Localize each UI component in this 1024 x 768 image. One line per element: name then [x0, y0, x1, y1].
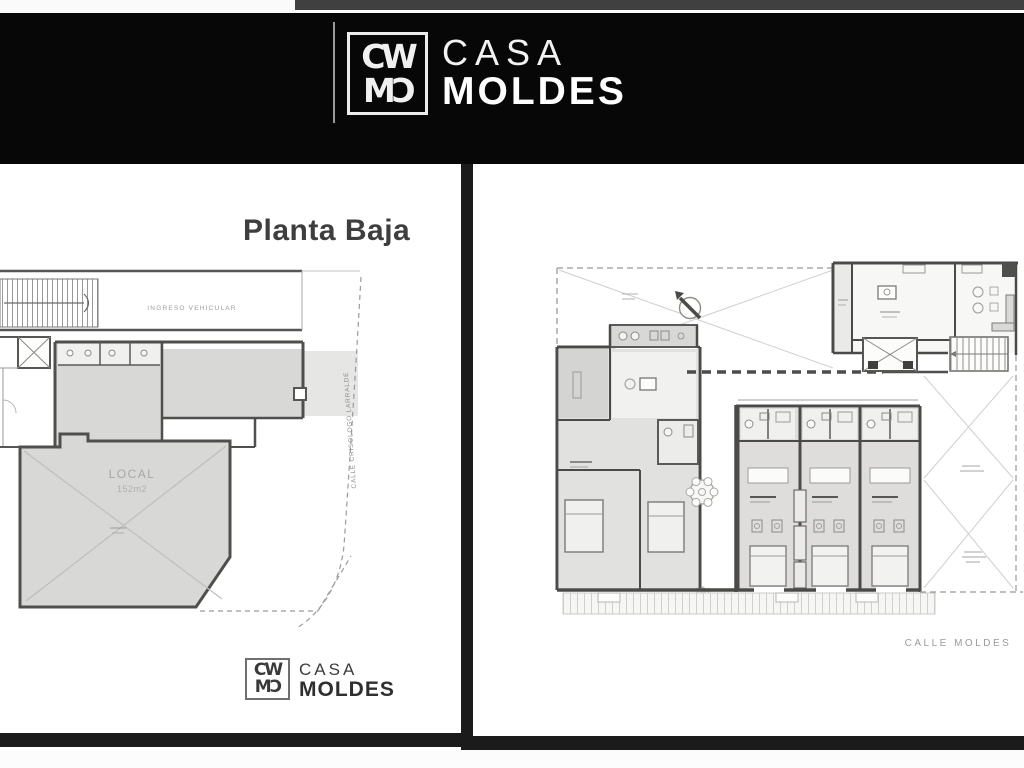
left-panel-border — [0, 733, 461, 747]
unit-left — [557, 325, 700, 590]
planta-baja-floorplan: INGRESO VEHICULAR — [0, 164, 461, 733]
stairs — [950, 337, 1008, 371]
toilet-fixture — [141, 350, 147, 356]
street-label-moldes: CALLE MOLDES — [905, 638, 1012, 649]
local-room: LOCAL 152m2 — [20, 434, 230, 607]
bed — [565, 500, 603, 552]
door-swing — [3, 400, 16, 413]
bottom-strip — [0, 750, 1024, 768]
sidewalk — [563, 593, 935, 614]
header-bar: CW MƆ CASA MOLDES — [0, 13, 1024, 164]
bathroom — [658, 420, 698, 464]
brand-name: CASA MOLDES — [442, 34, 627, 111]
vehicle-ramp: INGRESO VEHICULAR — [0, 271, 360, 330]
footer-brand-line2: MOLDES — [299, 679, 395, 700]
ramp-label: INGRESO VEHICULAR — [147, 305, 236, 312]
duct-box — [294, 388, 306, 400]
typical-floorplan: CALLE MOLDES — [473, 164, 1024, 736]
monogram-top: CW — [350, 40, 425, 74]
service-shaft — [863, 338, 917, 371]
side-patio — [920, 355, 1023, 592]
table — [878, 286, 896, 299]
ground-floor-rooms — [0, 337, 358, 447]
bed — [648, 502, 684, 552]
toilet-fixture — [67, 350, 73, 356]
footer-brand-name: CASA MOLDES — [299, 660, 395, 700]
flyer-page: CW MƆ CASA MOLDES Planta Baja ING — [0, 0, 1024, 768]
table — [640, 378, 656, 390]
local-label: LOCAL — [109, 467, 156, 481]
toilet-fixture — [85, 350, 91, 356]
local-area-label: 152m2 — [117, 484, 147, 494]
brand-name-line2: MOLDES — [442, 72, 627, 111]
top-strip-shade — [295, 0, 1024, 10]
right-panel-border — [473, 736, 1024, 750]
monogram-bottom: MƆ — [247, 679, 288, 696]
panel-divider — [461, 164, 473, 752]
footer-monogram: CW MƆ — [245, 658, 290, 700]
footer-brand-line1: CASA — [299, 660, 395, 679]
monogram-bottom: MƆ — [350, 74, 425, 108]
brand-monogram: CW MƆ — [347, 32, 428, 115]
brand-name-line1: CASA — [442, 34, 627, 72]
north-arrow — [675, 291, 701, 319]
logo-accent-line — [333, 22, 335, 123]
toilet-fixture — [109, 350, 115, 356]
